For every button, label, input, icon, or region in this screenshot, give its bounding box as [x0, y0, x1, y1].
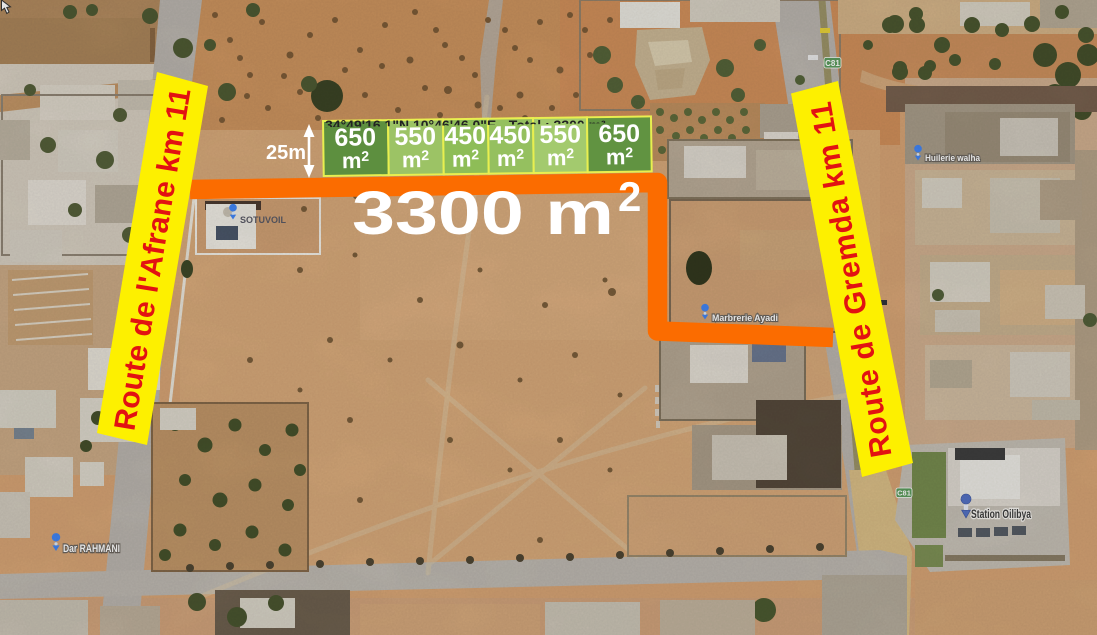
svg-text:3300 m: 3300 m	[352, 179, 614, 247]
svg-text:25m: 25m	[266, 142, 306, 164]
svg-text:2: 2	[618, 173, 641, 220]
